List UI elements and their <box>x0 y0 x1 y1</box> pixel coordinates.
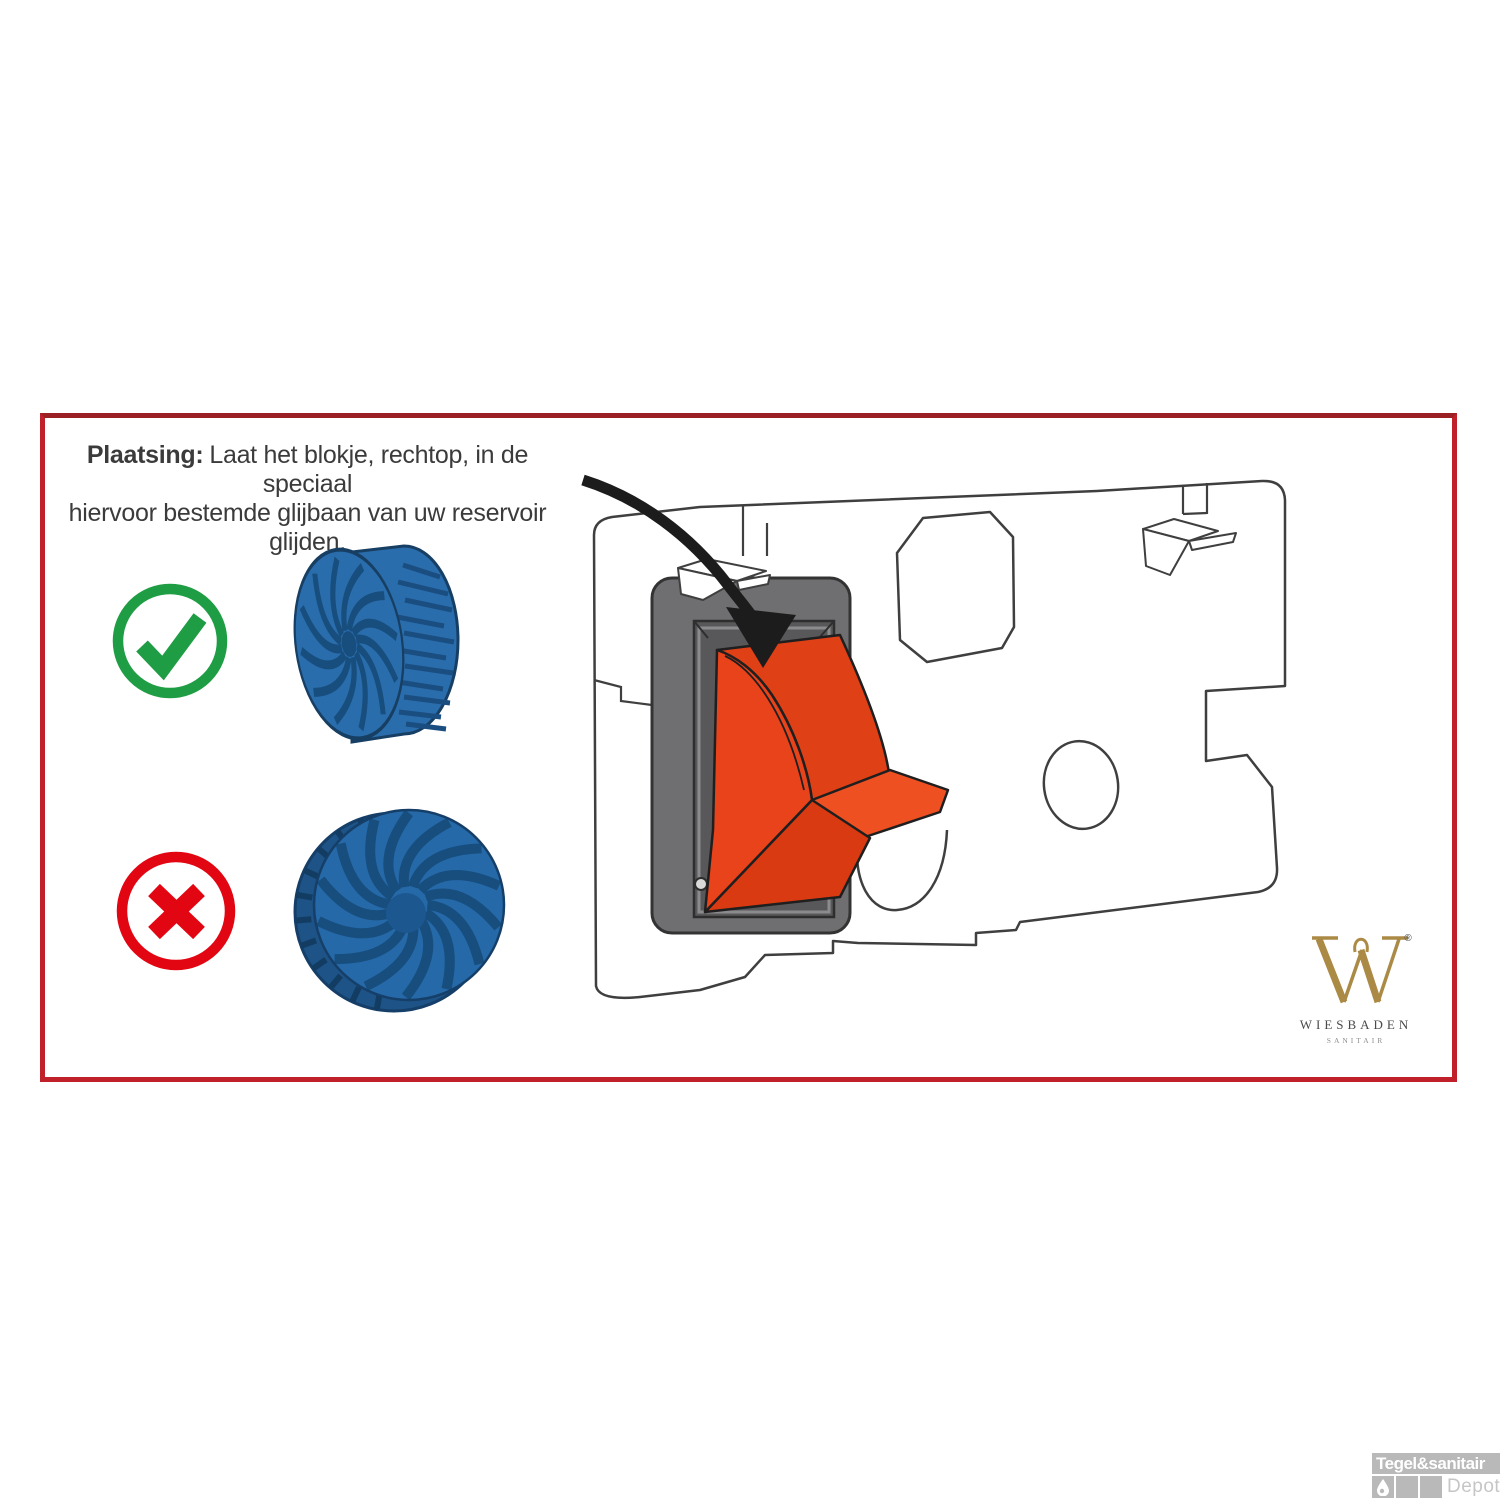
instruction-line-1: Plaatsing:Laat het blokje, rechtop, in d… <box>55 441 560 499</box>
cross-circle-icon <box>122 857 230 965</box>
instruction-line1-text: Laat het blokje, rechtop, in de speciaal <box>209 441 528 498</box>
brand-monogram-icon: ® <box>1298 930 1414 1008</box>
watermark-title: Tegel&sanitair <box>1372 1453 1500 1474</box>
watermark-square <box>1396 1476 1418 1498</box>
tablet-upright-illustration <box>283 543 458 746</box>
brand-name: WIESBADEN <box>1290 1017 1422 1033</box>
tablet-flat-illustration <box>295 810 504 1011</box>
slide-frame-screw <box>695 878 707 890</box>
droplet-icon <box>1375 1478 1391 1496</box>
watermark-subtitle: Depot <box>1447 1476 1500 1498</box>
registered-mark: ® <box>1404 933 1412 944</box>
check-circle-icon <box>118 589 222 693</box>
brand-subtitle: SANITAIR <box>1290 1036 1422 1045</box>
store-watermark: Tegel&sanitair Depot <box>1372 1453 1500 1498</box>
instruction-label: Plaatsing: <box>87 441 203 469</box>
watermark-square-droplet <box>1372 1476 1394 1498</box>
cistern-diagram <box>560 440 1310 1060</box>
watermark-square <box>1420 1476 1442 1498</box>
brand-logo: ® WIESBADEN SANITAIR <box>1290 930 1422 1045</box>
page: { "panel": { "border_color": "#c0202a" }… <box>0 0 1500 1500</box>
orientation-guide-illustration <box>90 525 520 1035</box>
